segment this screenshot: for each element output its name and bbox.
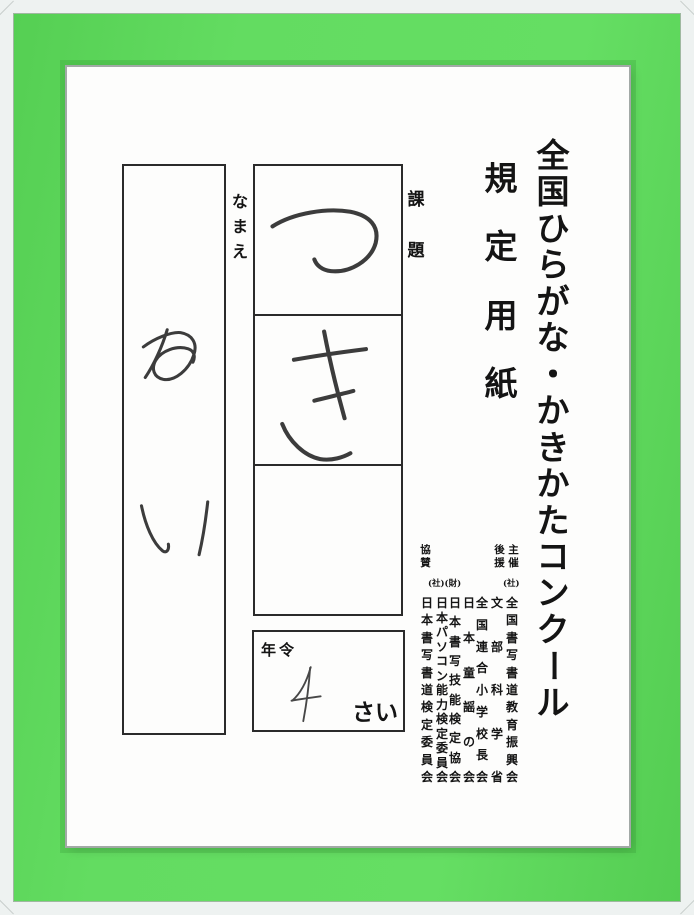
task-box-2 [255, 314, 401, 464]
cooperation-role-label: 協賛 [419, 545, 432, 568]
host-role-label: 主催 [507, 545, 520, 568]
frame-miter-top-left [0, 1, 14, 16]
handwritten-i [133, 500, 221, 572]
name-field-label: なまえ [230, 194, 250, 260]
handwritten-tsu [255, 166, 401, 312]
organizer-column-2: 文部科学省 [490, 597, 504, 783]
frame-miter-bottom-right [680, 900, 694, 915]
age-unit-label: さい [352, 693, 398, 727]
organizer-column-1: 全国書写書道教育振興会 [505, 597, 519, 783]
handwritten-age-4 [276, 658, 338, 726]
age-entry-box: 年令 さい [252, 630, 405, 732]
task-box-3-empty [255, 464, 401, 614]
task-field-label: 課題 [406, 192, 426, 260]
task-character-boxes [253, 164, 403, 616]
task-box-1 [255, 166, 401, 314]
organizer-column-4: 日本童謡の会 [462, 597, 476, 783]
support-role-label: 後援 [493, 545, 506, 568]
photo-of-framed-contest-entry: { "photo": { "frame_color": "#5fd75c", "… [0, 0, 694, 915]
name-entry-box [122, 164, 226, 735]
handwritten-me [137, 325, 205, 387]
frame-miter-bottom-left [0, 900, 14, 915]
handwritten-ki [255, 316, 401, 462]
contest-entry-paper: 全国ひらがな・かきかたコンクール 規定用紙 課題 なまえ [67, 67, 629, 846]
organizer-column-7: 日本書写書道検定委員会 [420, 597, 434, 783]
frame-miter-top-right [680, 1, 694, 16]
organizer-column-6: 日本パソコン能力検定委員会 [435, 597, 449, 783]
form-subtitle: 規定用紙 [481, 162, 521, 400]
cooperation-org-type-prefix: (社)(財) [428, 580, 461, 589]
host-org-type-prefix: (社) [503, 580, 520, 589]
age-field-label: 年令 [261, 639, 297, 660]
contest-title: 全国ひらがな・かきかたコンクール [533, 139, 573, 719]
organizer-column-5: 日本書写技能検定協会 [448, 597, 462, 783]
organizer-column-3: 全国連合小学校長会 [475, 597, 489, 783]
